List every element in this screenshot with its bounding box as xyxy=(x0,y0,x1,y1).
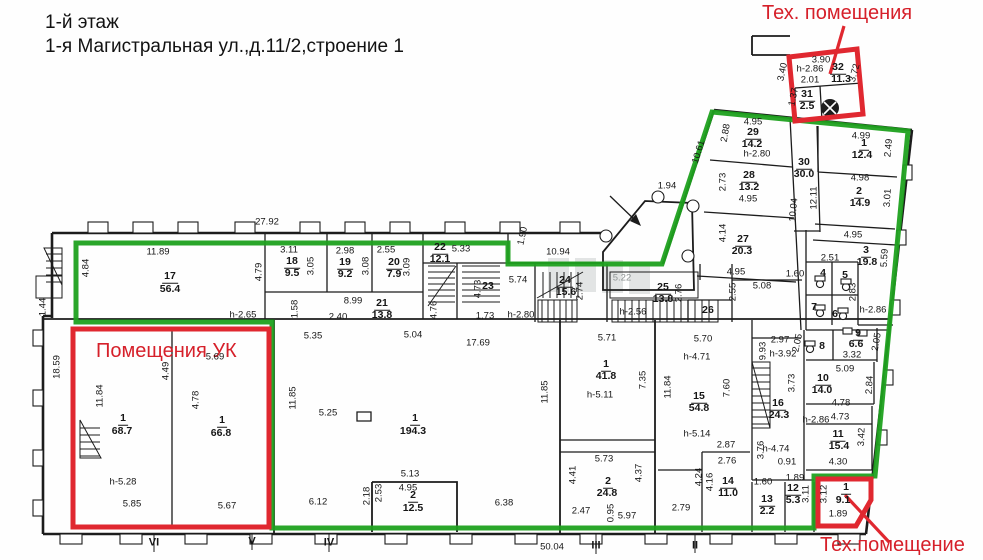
dimension-label: 0.91 xyxy=(778,457,797,467)
room-number: 2 xyxy=(408,490,418,503)
dimension-label: 5.22 xyxy=(613,273,632,283)
dimension-label: 3.40 xyxy=(776,62,789,82)
room-area: 54.8 xyxy=(689,403,709,414)
dimension-label: 1.58 xyxy=(290,300,300,319)
dimension-label: 5.04 xyxy=(404,330,423,340)
room-number: 1 xyxy=(410,413,420,426)
dimension-label: h-3.92 xyxy=(770,349,797,359)
dimension-label: 5.85 xyxy=(123,499,142,509)
dimension-label: 6.38 xyxy=(495,498,514,508)
plan-labels: 27.9211.894.844.793.113.052.983.082.553.… xyxy=(0,0,983,560)
axis-label: V xyxy=(248,537,255,548)
axis-label: II xyxy=(692,541,698,552)
dimension-label: 4.24 xyxy=(694,468,704,487)
dimension-label: h-4.71 xyxy=(684,352,711,362)
dimension-label: 5.25 xyxy=(319,408,338,418)
dimension-label: 6.12 xyxy=(309,497,328,507)
room-area: 13.8 xyxy=(653,294,673,305)
dimension-label: 3.76 xyxy=(756,441,766,460)
dimension-label: 10.94 xyxy=(546,247,570,257)
dimension-label: 7.60 xyxy=(722,379,732,398)
room-area: 7.9 xyxy=(387,269,402,280)
dimension-label: 4.79 xyxy=(254,263,264,282)
room-area: 68.7 xyxy=(112,426,132,437)
dimension-label: 2.49 xyxy=(883,138,894,157)
room-number: 6 xyxy=(832,309,838,320)
dimension-label: 10.04 xyxy=(788,198,800,223)
room-area: 9.1 xyxy=(836,495,851,506)
room-number: 4 xyxy=(820,268,826,279)
room-area: 9.5 xyxy=(285,268,300,279)
dimension-label: 3.09 xyxy=(402,258,412,277)
room-area: 13.8 xyxy=(372,310,392,321)
dimension-label: 5.67 xyxy=(218,501,237,511)
dimension-label: 2.73 xyxy=(718,173,728,192)
room-area: 56.4 xyxy=(160,284,180,295)
dimension-label: 9.93 xyxy=(758,342,768,361)
dimension-label: 4.95 xyxy=(739,194,758,204)
dimension-label: 2.18 xyxy=(362,487,372,506)
dimension-label: 11.85 xyxy=(540,380,550,403)
room-area: 14.2 xyxy=(742,139,762,150)
room-area: 14.0 xyxy=(812,385,832,396)
dimension-label: 1.90 xyxy=(516,226,529,246)
dimension-label: 2.40 xyxy=(329,312,348,322)
dimension-label: 2.53 xyxy=(374,484,384,503)
dimension-label: 27.92 xyxy=(255,217,279,227)
room-area: 9.2 xyxy=(338,269,353,280)
room-number: 7 xyxy=(811,302,817,313)
dimension-label: 3.11 xyxy=(280,245,298,255)
room-area: 12.4 xyxy=(852,150,872,161)
dimension-label: 4.49 xyxy=(161,362,171,381)
dimension-label: 2.88 xyxy=(720,123,733,143)
floorplan-page: 1-й этаж 1-я Магистральная ул.,д.11/2,ст… xyxy=(0,0,983,560)
room-area: 11.3 xyxy=(831,74,851,85)
dimension-label: 2.01 xyxy=(801,75,820,85)
dimension-label: 5.73 xyxy=(595,454,614,464)
dimension-label: 5.69 xyxy=(206,352,225,362)
axis-label: IV xyxy=(324,538,334,549)
dimension-label: 11.84 xyxy=(663,375,673,398)
room-area: 14.9 xyxy=(850,198,870,209)
dimension-label: 2.55 xyxy=(377,245,396,255)
dimension-label: h-2.80 xyxy=(508,310,535,320)
dimension-label: 4.78 xyxy=(191,391,201,410)
room-area: 41.8 xyxy=(596,371,616,382)
room-area: 24.8 xyxy=(597,488,617,499)
axis-label: III xyxy=(591,541,600,552)
room-number: 23 xyxy=(482,281,494,292)
dimension-label: 8.99 xyxy=(344,296,363,306)
dimension-label: 1.73 xyxy=(476,311,495,321)
dimension-label: 2.79 xyxy=(672,503,691,513)
room-area: 2.2 xyxy=(760,506,775,517)
dimension-label: 4.98 xyxy=(851,173,870,183)
room-area: 66.8 xyxy=(211,428,231,439)
dimension-label: 2.55 xyxy=(728,283,738,302)
dimension-label: 10.61 xyxy=(691,139,707,165)
dimension-label: 4.76 xyxy=(429,301,439,320)
room-area: 30.0 xyxy=(794,169,814,180)
room-area: 5.3 xyxy=(786,495,801,506)
dimension-label: 3.05 xyxy=(306,257,316,276)
dimension-label: h-2.65 xyxy=(230,310,257,320)
dimension-label: 4.37 xyxy=(634,464,644,483)
dimension-label: 2.83 xyxy=(848,283,858,302)
room-area: 13.2 xyxy=(739,182,759,193)
dimension-label: h-2.80 xyxy=(744,149,771,159)
dimension-label: 3.42 xyxy=(857,428,867,447)
dimension-label: 4.78 xyxy=(832,398,851,408)
room-area: 6.6 xyxy=(849,339,864,350)
dimension-label: 1.44 xyxy=(38,298,48,317)
axis-label: VI xyxy=(149,538,159,549)
dimension-label: 2.47 xyxy=(572,506,591,516)
dimension-label: 11.84 xyxy=(95,384,105,407)
dimension-label: 2.76 xyxy=(718,456,737,466)
dimension-label: 3.08 xyxy=(361,257,371,276)
room-area: 24.3 xyxy=(769,410,789,421)
dimension-label: 5.09 xyxy=(836,364,855,374)
dimension-label: 2.87 xyxy=(717,440,736,450)
dimension-label: 2.76 xyxy=(674,284,684,303)
dimension-label: 12.11 xyxy=(809,186,819,209)
dimension-label: 4.95 xyxy=(844,230,863,240)
dimension-label: 2.97 xyxy=(771,335,790,345)
dimension-label: h-5.14 xyxy=(684,429,711,439)
room-area: 2.5 xyxy=(800,101,815,112)
dimension-label: 4.14 xyxy=(718,224,728,243)
room-area: 12.5 xyxy=(403,503,423,514)
room-area: 20.3 xyxy=(732,246,752,257)
room-number: 1 xyxy=(118,413,128,426)
dimension-label: 5.74 xyxy=(509,275,528,285)
dimension-label: 5.97 xyxy=(618,511,637,521)
dimension-label: 2.51 xyxy=(821,253,840,263)
dimension-label: 5.59 xyxy=(880,249,890,268)
dimension-label: 4.84 xyxy=(81,259,91,278)
dimension-label: 7.35 xyxy=(638,371,648,390)
room-number: 26 xyxy=(702,305,714,316)
dimension-label: 5.08 xyxy=(753,281,772,291)
dimension-label: h-2.86 xyxy=(797,64,824,74)
dimension-label: 18.59 xyxy=(52,355,62,379)
room-number: 5 xyxy=(842,270,848,281)
dimension-label: 5.70 xyxy=(694,334,713,344)
dimension-label: h-2.56 xyxy=(620,307,647,317)
room-area: 19.8 xyxy=(857,257,877,268)
dimension-label: 1.89 xyxy=(829,509,848,519)
room-number: 1 xyxy=(841,482,851,495)
dimension-label: 50.04 xyxy=(540,542,564,552)
dimension-label: 4.73 xyxy=(831,412,850,422)
dimension-label: 4.30 xyxy=(829,457,848,467)
dimension-label: 5.71 xyxy=(598,333,617,343)
dimension-label: 0.95 xyxy=(606,504,616,523)
room-area: 15.6 xyxy=(556,287,576,298)
dimension-label: 2.84 xyxy=(865,376,875,395)
dimension-label: 1.60 xyxy=(754,477,773,487)
room-number: 1 xyxy=(217,415,227,428)
dimension-label: 3.32 xyxy=(843,350,862,360)
dimension-label: 4.16 xyxy=(705,473,715,492)
dimension-label: 1.94 xyxy=(658,181,677,191)
dimension-label: 2.74 xyxy=(575,282,585,301)
dimension-label: h-4.74 xyxy=(763,444,790,454)
dimension-label: 17.69 xyxy=(466,338,490,348)
dimension-label: 11.89 xyxy=(146,247,169,257)
dimension-label: 4.95 xyxy=(727,267,746,277)
dimension-label: 3.11 xyxy=(801,485,811,503)
room-area: 15.4 xyxy=(829,441,849,452)
dimension-label: h-2.86 xyxy=(803,415,830,425)
room-area: 194.3 xyxy=(400,426,426,437)
dimension-label: 5.33 xyxy=(452,244,471,254)
dimension-label: 2.98 xyxy=(336,246,355,256)
dimension-label: h-5.11 xyxy=(587,390,613,400)
dimension-label: 3.01 xyxy=(883,189,893,208)
dimension-label: 4.41 xyxy=(568,466,578,485)
dimension-label: 1.60 xyxy=(786,269,805,279)
room-area: 11.0 xyxy=(718,488,738,499)
dimension-label: 5.13 xyxy=(401,469,420,479)
dimension-label: 2.05 xyxy=(871,332,884,352)
dimension-label: 5.35 xyxy=(304,331,323,341)
room-number: 8 xyxy=(819,341,825,352)
dimension-label: 3.12 xyxy=(819,485,829,504)
dimension-label: h-2.86 xyxy=(860,305,887,315)
dimension-label: 11.85 xyxy=(288,386,298,409)
room-area: 12.1 xyxy=(430,254,450,265)
dimension-label: h-5.28 xyxy=(110,477,137,487)
dimension-label: 3.73 xyxy=(787,374,797,393)
room-number: 17 xyxy=(162,271,178,284)
